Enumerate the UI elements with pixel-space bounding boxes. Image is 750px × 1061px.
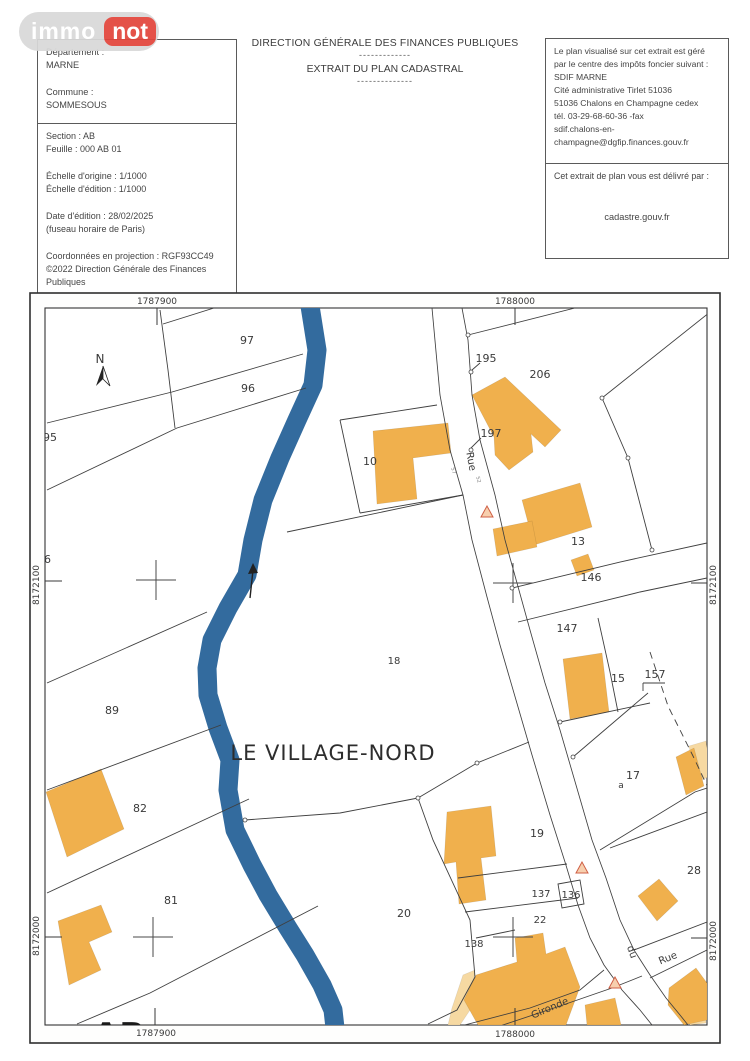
parcel-label-206: 206 bbox=[530, 368, 551, 381]
coord-bottom-1787900: 1787900 bbox=[136, 1029, 176, 1039]
immonot-logo[interactable]: immo not bbox=[19, 12, 159, 51]
parcel-label-81: 81 bbox=[164, 894, 178, 907]
parcel-label-19: 19 bbox=[530, 827, 544, 840]
coord-top-1788000: 1788000 bbox=[495, 297, 535, 307]
coord-right-8172100: 8172100 bbox=[709, 565, 719, 605]
coord-right-8172000: 8172000 bbox=[709, 921, 719, 961]
parcel-label-97: 97 bbox=[240, 334, 254, 347]
parcel-label-95: 95 bbox=[43, 431, 57, 444]
map-inner-border bbox=[45, 308, 707, 1025]
cadastral-map: 1787900178800017879001788000817210081720… bbox=[0, 0, 750, 1061]
parcel-label-18: 18 bbox=[388, 656, 401, 667]
parcel-label-137: 137 bbox=[531, 889, 550, 900]
parcel-label-28: 28 bbox=[687, 864, 701, 877]
parcel-label-13: 13 bbox=[571, 535, 585, 548]
parcel-label-17a: a bbox=[618, 781, 624, 791]
coord-left-8172000: 8172000 bbox=[32, 916, 42, 956]
coord-bottom-1788000: 1788000 bbox=[495, 1030, 535, 1040]
parcel-label-197: 197 bbox=[481, 427, 502, 440]
parcel-label-15: 15 bbox=[611, 672, 625, 685]
parcel-label-136: 136 bbox=[561, 890, 580, 901]
parcel-label-157: 157 bbox=[645, 668, 666, 681]
parcel-label-96: 96 bbox=[241, 382, 255, 395]
parcel-label-10: 10 bbox=[363, 455, 377, 468]
building-parcel-15 bbox=[563, 653, 609, 719]
parcel-label-89: 89 bbox=[105, 704, 119, 717]
parcel-label-20: 20 bbox=[397, 907, 411, 920]
parcel-label-195: 195 bbox=[476, 352, 497, 365]
coord-top-1787900: 1787900 bbox=[137, 297, 177, 307]
parcel-label-82: 82 bbox=[133, 802, 147, 815]
logo-immo-text: immo bbox=[19, 18, 104, 45]
parcel-label-17: 17 bbox=[626, 769, 640, 782]
parcel-label-146: 146 bbox=[581, 571, 602, 584]
parcel-label-138: 138 bbox=[464, 939, 483, 950]
north-label: N bbox=[96, 352, 105, 366]
logo-not-badge: not bbox=[104, 17, 156, 46]
parcel-label-22: 22 bbox=[534, 915, 547, 926]
place-name: LE VILLAGE-NORD bbox=[230, 741, 435, 765]
parcel-label-147: 147 bbox=[557, 622, 578, 635]
coord-left-8172100: 8172100 bbox=[32, 565, 42, 605]
